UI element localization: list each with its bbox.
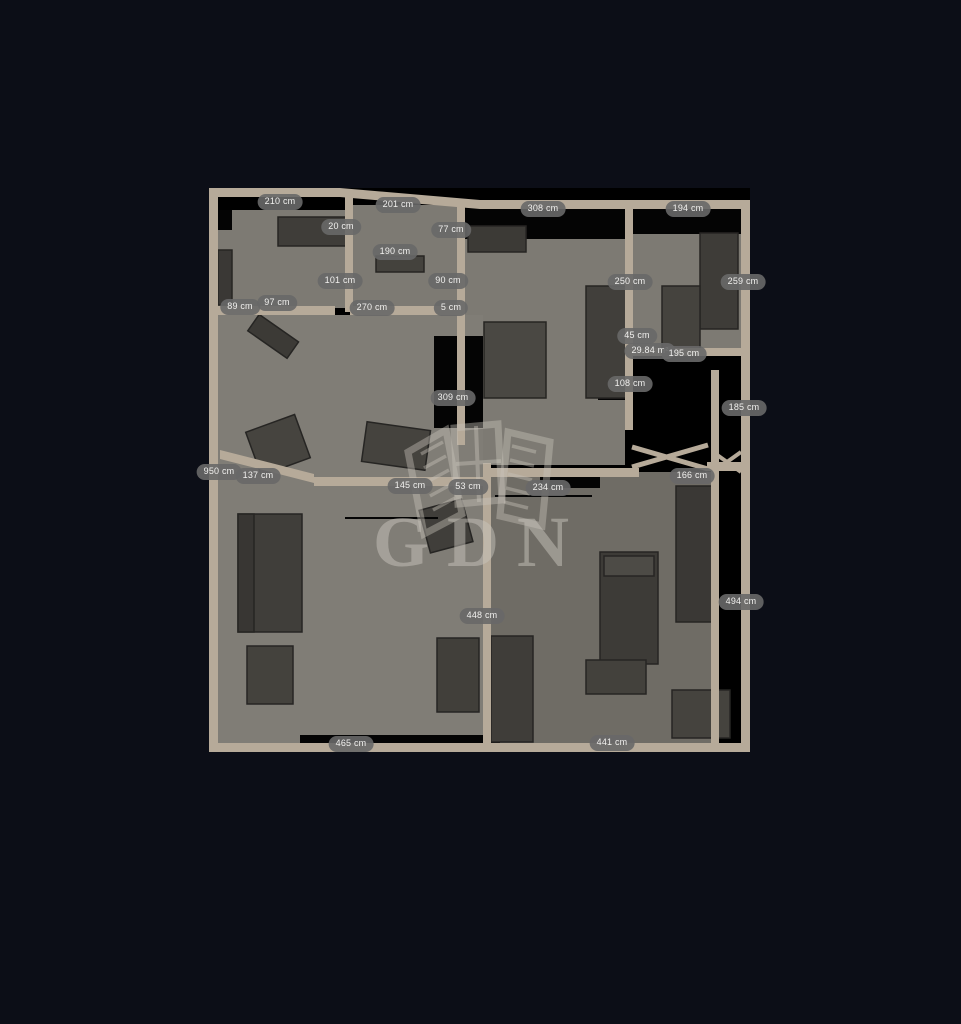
wall-inner-right bbox=[711, 370, 719, 744]
tall-unit bbox=[586, 286, 626, 398]
shelf-left-wall bbox=[218, 250, 232, 305]
wardrobe-topright bbox=[700, 233, 738, 329]
bed-pillow bbox=[604, 556, 654, 576]
dresser bbox=[586, 660, 646, 694]
wall-hall-living bbox=[457, 202, 465, 445]
hall-bench bbox=[376, 256, 424, 272]
wall-outer-left bbox=[209, 188, 218, 752]
cabinet-bedroom-left bbox=[491, 636, 533, 742]
wall-topleft-lower-a bbox=[218, 306, 335, 315]
wall-kitchen-right bbox=[625, 200, 633, 430]
coffee-table bbox=[247, 646, 293, 704]
floor-plan: GDN bbox=[0, 0, 961, 1024]
floorplan-viewer: GDN 210 cm201 cm308 cm194 cm20 cm77 cm19… bbox=[0, 0, 961, 1024]
cabinet-bottom-middle bbox=[437, 638, 479, 712]
watermark-text: GDN bbox=[373, 502, 587, 582]
sofa-back bbox=[238, 514, 254, 632]
wardrobe-topleft bbox=[278, 217, 348, 246]
wall-right-horizontal bbox=[633, 348, 742, 356]
wall-topleft-hall bbox=[345, 194, 353, 312]
wardrobe-bottomright bbox=[672, 690, 730, 738]
wall-topleft-lower-b bbox=[350, 306, 462, 315]
wall-outer-bottom bbox=[209, 743, 750, 752]
cabinet-topright bbox=[662, 286, 700, 350]
wall-outer-right bbox=[741, 200, 750, 752]
kitchen-table bbox=[484, 322, 546, 398]
kitchen-counter bbox=[468, 226, 526, 252]
desk-right-wall bbox=[676, 486, 712, 622]
